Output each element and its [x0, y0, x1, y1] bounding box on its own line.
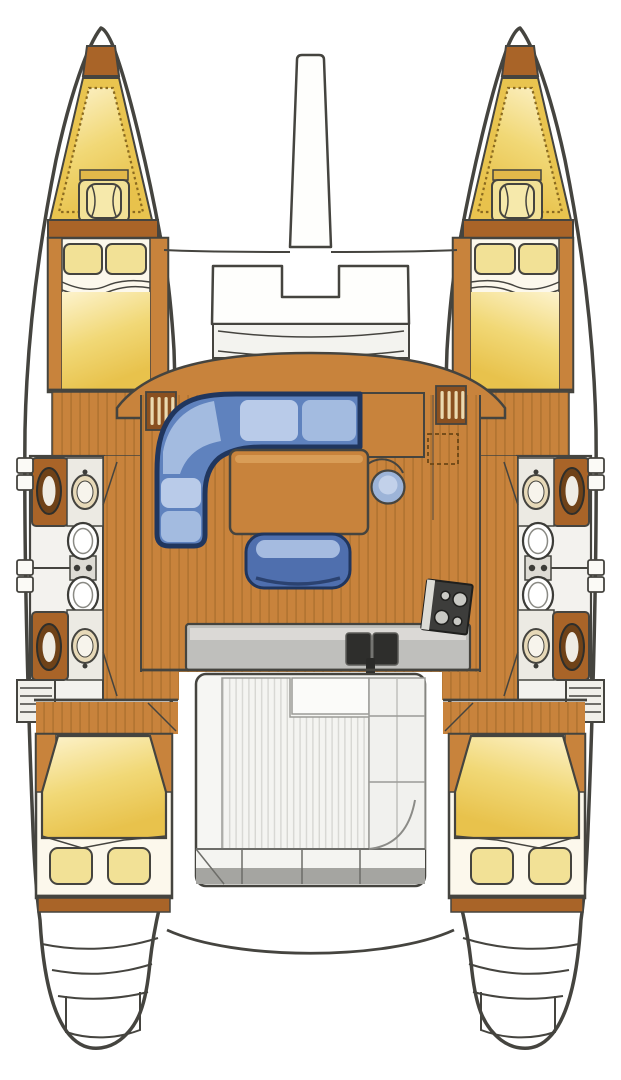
bowsprit-beam [290, 55, 331, 247]
settee-cushion [302, 400, 356, 441]
aft-crossbeam [167, 930, 454, 953]
cockpit-step [292, 678, 369, 714]
burner [452, 592, 468, 608]
burner [452, 616, 462, 626]
anchor-locker [212, 266, 409, 324]
settee-cushion [240, 400, 298, 441]
foredeck [164, 55, 457, 358]
table-highlight [235, 455, 363, 463]
catamaran-floor-plan [0, 0, 621, 1080]
cockpit [196, 674, 425, 886]
nav-cabinet [358, 393, 424, 457]
forward-crossbeam-starboard [331, 250, 457, 252]
settee-cushion [161, 511, 201, 542]
galley-sink-right [373, 633, 398, 665]
ottoman-highlight [256, 540, 340, 558]
stool-cushion [379, 476, 398, 495]
burner [440, 591, 450, 601]
galley-stove [421, 579, 473, 634]
floor-plan-canvas [0, 0, 621, 1080]
aft-bench-front [196, 868, 425, 884]
settee-cushion [161, 478, 201, 508]
starboard-companionway-steps [436, 386, 466, 424]
aft-bench-cushion [196, 849, 425, 868]
forward-crossbeam-port [164, 250, 290, 252]
burner [434, 610, 450, 626]
